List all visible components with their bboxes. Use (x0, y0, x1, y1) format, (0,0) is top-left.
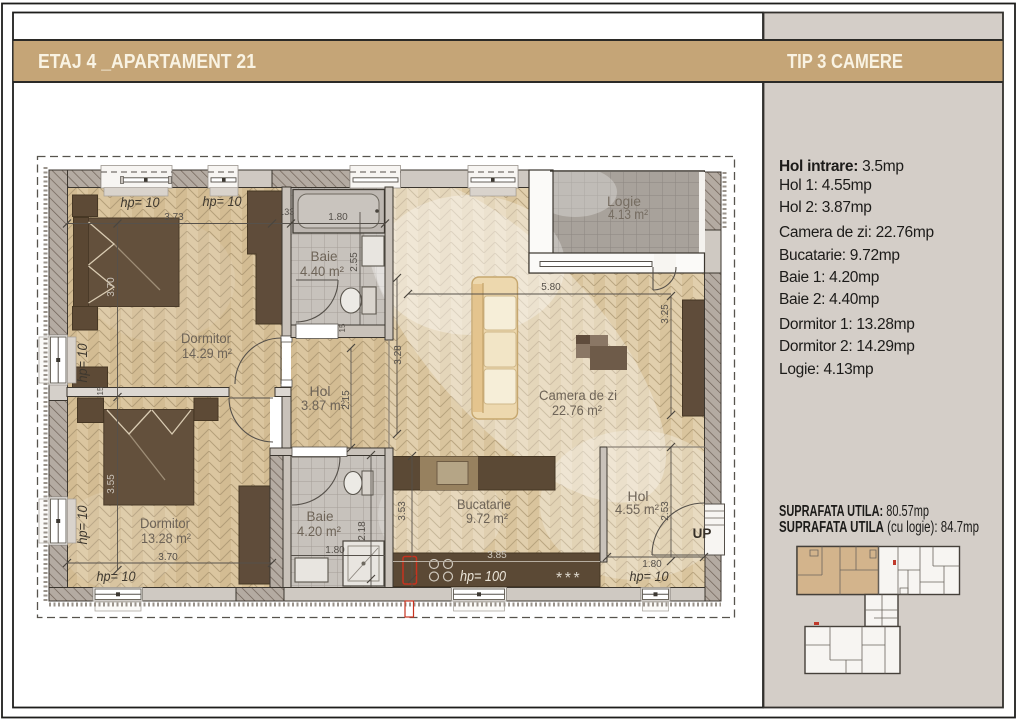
svg-text:1.80: 1.80 (642, 559, 662, 570)
svg-text:3.70: 3.70 (106, 277, 117, 297)
svg-text:ETAJ 4 _APARTAMENT 21: ETAJ 4 _APARTAMENT 21 (38, 51, 256, 73)
svg-text:4.13 m²: 4.13 m² (608, 206, 648, 222)
svg-text:Baie 1: 4.20mp: Baie 1: 4.20mp (779, 269, 879, 286)
svg-text:13.28 m²: 13.28 m² (141, 530, 191, 546)
svg-text:Dormitor: Dormitor (181, 330, 231, 346)
svg-text:3.25: 3.25 (660, 304, 671, 324)
svg-text:Dormitor 2: 14.29mp: Dormitor 2: 14.29mp (779, 338, 915, 355)
svg-text:3.87 m²: 3.87 m² (301, 397, 345, 413)
svg-text:Dormitor: Dormitor (140, 515, 190, 531)
svg-text:.33: .33 (282, 207, 295, 217)
svg-text:Baie: Baie (311, 248, 338, 264)
svg-text:2.55: 2.55 (349, 252, 360, 272)
svg-text:3.85: 3.85 (487, 550, 507, 561)
svg-text:2.18: 2.18 (357, 521, 368, 541)
svg-text:15: 15 (96, 386, 105, 395)
svg-text:Hol 1: 4.55mp: Hol 1: 4.55mp (779, 177, 872, 194)
svg-text:Camera de zi: Camera de zi (539, 387, 617, 403)
svg-text:Bucatarie: 9.72mp: Bucatarie: 9.72mp (779, 247, 900, 264)
svg-text:UP: UP (693, 526, 712, 541)
svg-text:hp= 10: hp= 10 (97, 569, 136, 584)
svg-text:Hol 2: 3.87mp: Hol 2: 3.87mp (779, 199, 872, 216)
svg-text:3.73: 3.73 (164, 212, 184, 223)
svg-text:1.80: 1.80 (328, 212, 348, 223)
svg-text:3.70: 3.70 (158, 552, 178, 563)
svg-text:4.40 m²: 4.40 m² (300, 263, 344, 279)
svg-text:14.29 m²: 14.29 m² (182, 345, 232, 361)
svg-text:9.72 m²: 9.72 m² (466, 510, 508, 526)
svg-text:TIP 3 CAMERE: TIP 3 CAMERE (787, 51, 903, 73)
svg-text:2.53: 2.53 (660, 501, 671, 521)
svg-text:hp= 10: hp= 10 (203, 194, 242, 209)
svg-text:22.76 m²: 22.76 m² (552, 402, 602, 418)
svg-text:1.80: 1.80 (325, 545, 345, 556)
svg-text:3.28: 3.28 (393, 345, 404, 365)
svg-text:SUPRAFATA UTILA (cu logie): 8: SUPRAFATA UTILA (cu logie): 84.7mp (779, 519, 979, 536)
svg-text:***: *** (556, 570, 582, 587)
svg-text:hp= 10: hp= 10 (630, 569, 669, 584)
svg-text:4.20 m²: 4.20 m² (297, 523, 341, 539)
svg-text:hp= 100: hp= 100 (460, 568, 507, 585)
svg-text:SUPRAFATA UTILA: 80.57mp: SUPRAFATA UTILA: 80.57mp (779, 503, 929, 520)
svg-text:hp= 10: hp= 10 (75, 505, 90, 544)
svg-text:3.55: 3.55 (106, 474, 117, 494)
svg-text:Hol intrare: 3.5mp: Hol intrare: 3.5mp (779, 158, 904, 175)
svg-text:hp= 10: hp= 10 (121, 195, 160, 210)
svg-text:4.55 m²: 4.55 m² (615, 501, 659, 517)
svg-text:hp= 10: hp= 10 (75, 343, 90, 382)
svg-text:15: 15 (338, 323, 347, 332)
svg-text:5.80: 5.80 (541, 282, 561, 293)
svg-text:Baie: Baie (307, 508, 334, 524)
svg-text:Logie: 4.13mp: Logie: 4.13mp (779, 361, 873, 378)
svg-text:2.15: 2.15 (341, 390, 352, 410)
svg-text:Baie 2: 4.40mp: Baie 2: 4.40mp (779, 291, 879, 308)
svg-text:Camera de zi: 22.76mp: Camera de zi: 22.76mp (779, 224, 934, 241)
svg-text:3.53: 3.53 (397, 501, 408, 521)
svg-text:Dormitor 1: 13.28mp: Dormitor 1: 13.28mp (779, 316, 915, 333)
